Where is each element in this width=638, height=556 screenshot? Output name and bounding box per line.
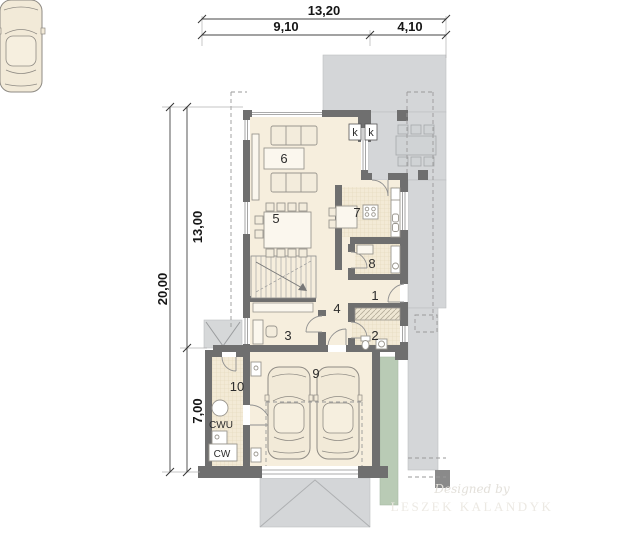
window-left-3 (243, 318, 250, 344)
garage-door (262, 466, 358, 478)
terrace-column (397, 110, 408, 121)
window-wc-right (400, 326, 408, 342)
grass-strip (380, 357, 398, 505)
label-hall: 1 (371, 288, 378, 303)
label-bathroom: 8 (368, 256, 375, 271)
label-kitchen: 7 (353, 205, 360, 220)
terrace-dining-set (396, 125, 436, 166)
toilet-bowl (362, 341, 369, 350)
dim-width-right: 4,10 (397, 19, 422, 34)
label-cw: CW (214, 449, 231, 460)
side-porch (204, 320, 242, 348)
stove (363, 205, 378, 219)
label-dining-room: 5 (272, 211, 279, 226)
label-utility-room: 10 (230, 379, 244, 394)
terrace-table (396, 136, 436, 155)
dim-height-lower: 7,00 (190, 398, 205, 423)
dim-height-total: 20,00 (155, 273, 170, 306)
desk (253, 320, 263, 344)
k-marker-left: k (352, 127, 358, 139)
wardrobe-hatch (355, 308, 400, 320)
label-living-room: 6 (280, 151, 287, 166)
car-left (265, 367, 313, 459)
hot-water-tank-symbol (212, 400, 228, 416)
dim-width-total: 13,20 (308, 3, 341, 18)
label-garage: 9 (312, 366, 319, 381)
dining-table (264, 212, 311, 248)
floor-plan-drawing: 13,20 9,10 4,10 20,00 13,00 7,00 6 5 7 8… (0, 0, 638, 556)
kitchen-counter (391, 188, 400, 237)
driveway (260, 478, 370, 527)
label-cwu: CWU (209, 420, 233, 431)
car-right (314, 367, 362, 459)
watermark: Designed by LESZEK KALANDYK (391, 482, 554, 514)
dim-height-upper: 13,00 (190, 211, 205, 244)
terrace-column (418, 170, 428, 180)
built-in-cabinet (253, 303, 313, 312)
desk-chair (266, 326, 277, 337)
window-kitchen-right (400, 192, 408, 230)
car-template-holder (0, 0, 45, 92)
dim-width-left: 9,10 (273, 19, 298, 34)
staircase (251, 256, 316, 312)
sideboard (252, 134, 259, 200)
label-corridor: 4 (333, 301, 340, 316)
window-living-top (252, 110, 322, 117)
label-office: 3 (284, 328, 291, 343)
window-left-1 (243, 120, 250, 140)
floor-plan-canvas: 13,20 9,10 4,10 20,00 13,00 7,00 6 5 7 8… (0, 0, 638, 556)
window-left-2 (243, 202, 250, 234)
watermark-line1: Designed by (433, 482, 509, 496)
label-wc: 2 (371, 328, 378, 343)
k-marker-right: k (368, 127, 374, 139)
watermark-line2: LESZEK KALANDYK (391, 499, 554, 514)
